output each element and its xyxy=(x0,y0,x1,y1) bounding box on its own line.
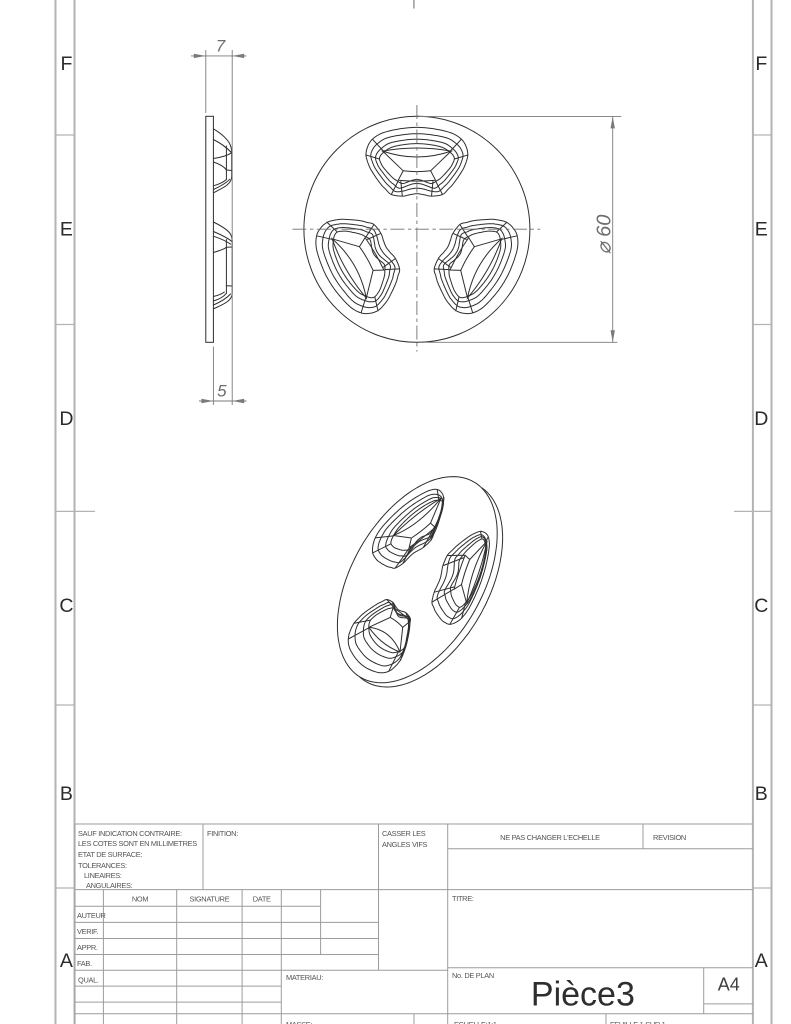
svg-text:E: E xyxy=(755,218,768,240)
svg-text:B: B xyxy=(755,783,768,805)
svg-text:CASSER LES: CASSER LES xyxy=(382,829,426,838)
svg-text:FEUILLE 1 SUR 1: FEUILLE 1 SUR 1 xyxy=(610,1020,666,1024)
svg-text:ECHELLE:1:1: ECHELLE:1:1 xyxy=(454,1020,497,1024)
svg-text:DATE: DATE xyxy=(253,895,271,904)
svg-text:AUTEUR: AUTEUR xyxy=(77,911,106,920)
svg-text:LINEAIRES:: LINEAIRES: xyxy=(84,871,122,880)
svg-text:E: E xyxy=(60,218,73,240)
svg-text:F: F xyxy=(60,53,72,75)
svg-text:C: C xyxy=(59,595,73,617)
svg-text:C: C xyxy=(754,595,768,617)
svg-text:SIGNATURE: SIGNATURE xyxy=(189,895,229,904)
svg-text:ETAT DE SURFACE:: ETAT DE SURFACE: xyxy=(78,850,142,859)
svg-text:B: B xyxy=(60,783,73,805)
svg-text:⌀ 60: ⌀ 60 xyxy=(594,215,616,255)
svg-text:No. DE PLAN: No. DE PLAN xyxy=(452,971,494,980)
svg-text:NE PAS CHANGER L'ECHELLE: NE PAS CHANGER L'ECHELLE xyxy=(500,833,600,842)
svg-text:FINITION:: FINITION: xyxy=(207,829,238,838)
svg-text:VERIF.: VERIF. xyxy=(77,927,98,936)
svg-text:TOLERANCES:: TOLERANCES: xyxy=(78,861,127,870)
svg-text:A4: A4 xyxy=(718,975,740,995)
svg-text:TITRE:: TITRE: xyxy=(452,894,474,903)
svg-text:ANGLES VIFS: ANGLES VIFS xyxy=(382,840,428,849)
svg-text:NOM: NOM xyxy=(132,895,148,904)
svg-text:MATERIAU:: MATERIAU: xyxy=(286,973,323,982)
svg-text:ANGULAIRES:: ANGULAIRES: xyxy=(86,881,133,890)
svg-text:D: D xyxy=(754,408,768,430)
svg-text:7: 7 xyxy=(216,37,226,56)
svg-text:A: A xyxy=(755,950,768,972)
svg-text:QUAL.: QUAL. xyxy=(78,976,99,985)
svg-text:D: D xyxy=(59,408,73,430)
svg-text:APPR.: APPR. xyxy=(77,943,98,952)
svg-text:SAUF INDICATION CONTRAIRE:: SAUF INDICATION CONTRAIRE: xyxy=(78,829,182,838)
svg-text:REVISION: REVISION xyxy=(653,833,686,842)
svg-text:MASSE:: MASSE: xyxy=(286,1020,312,1024)
svg-text:5: 5 xyxy=(217,382,227,401)
svg-text:Pièce3: Pièce3 xyxy=(531,976,635,1014)
svg-text:LES COTES SONT EN MILLIMETRES: LES COTES SONT EN MILLIMETRES xyxy=(78,839,197,848)
svg-text:FAB.: FAB. xyxy=(77,959,92,968)
svg-text:A: A xyxy=(60,950,73,972)
svg-text:F: F xyxy=(755,53,767,75)
